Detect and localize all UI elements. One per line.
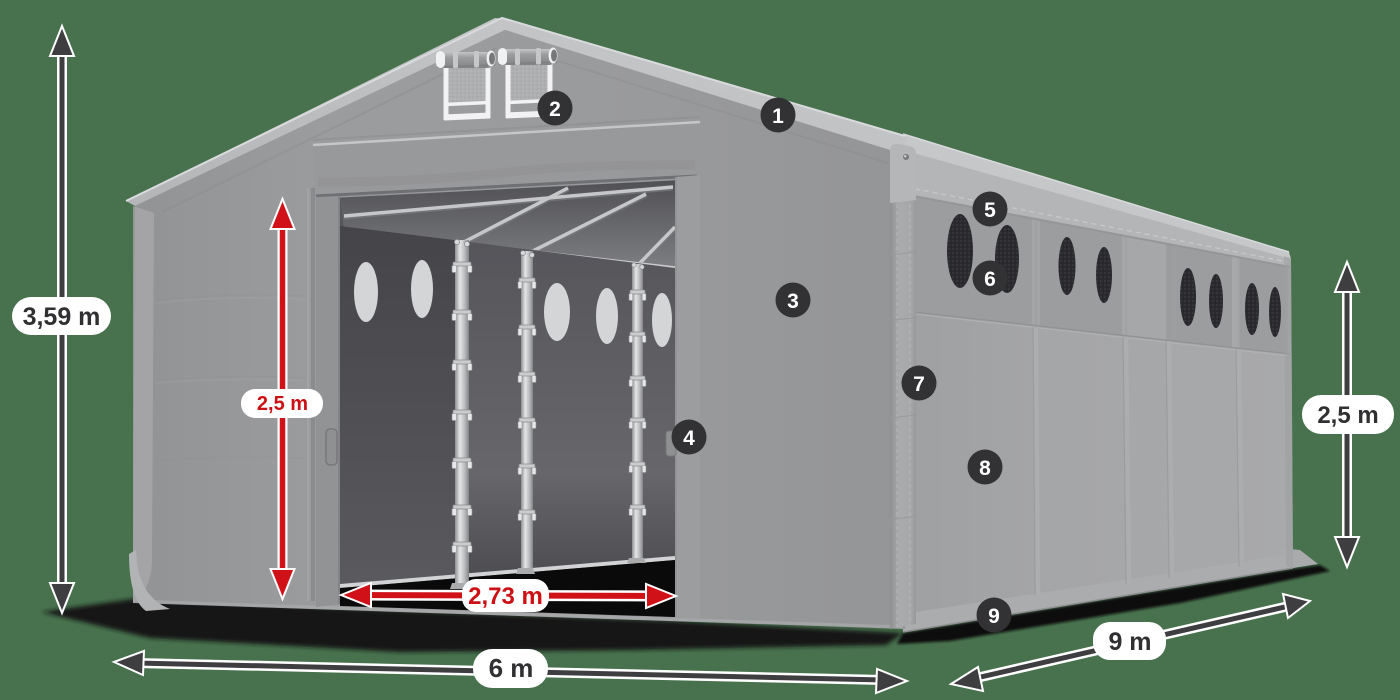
svg-text:9 m: 9 m [1108,628,1151,656]
svg-text:3,59 m: 3,59 m [23,303,101,331]
svg-text:4: 4 [683,427,695,450]
svg-text:6 m: 6 m [489,653,534,683]
svg-text:2,73 m: 2,73 m [468,583,543,610]
svg-text:5: 5 [984,199,996,222]
svg-text:8: 8 [979,457,991,480]
svg-text:1: 1 [772,105,784,128]
svg-text:2,5 m: 2,5 m [257,393,308,415]
svg-text:7: 7 [913,373,925,396]
svg-text:6: 6 [984,268,996,291]
svg-text:2: 2 [549,98,561,121]
svg-text:3: 3 [787,290,799,313]
svg-text:2,5 m: 2,5 m [1317,402,1378,429]
svg-text:9: 9 [988,605,1000,628]
